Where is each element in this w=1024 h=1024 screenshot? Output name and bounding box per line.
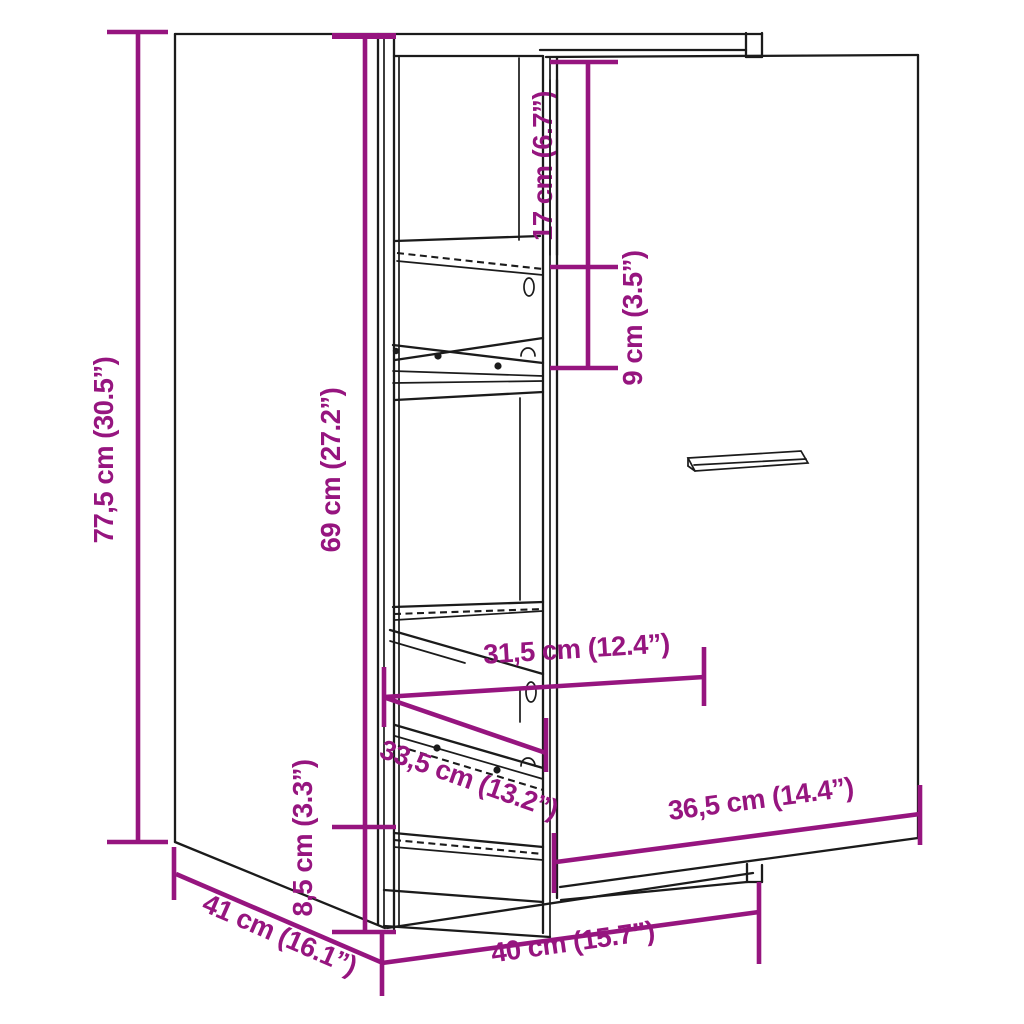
- dim-second-compartment-label: 9 cm (3.5”): [617, 250, 648, 385]
- cabinet-dimension-diagram: 77,5 cm (30.5”) 69 cm (27.2”) 8,5 cm (3.…: [0, 0, 1024, 1024]
- diagram-canvas: 77,5 cm (30.5”) 69 cm (27.2”) 8,5 cm (3.…: [0, 0, 1024, 1024]
- dim-overall-height-label: 77,5 cm (30.5”): [88, 357, 119, 544]
- dim-plinth-height-label: 8,5 cm (3.3”): [287, 759, 318, 916]
- canvas-background: [0, 0, 1024, 1024]
- dim-top-compartment-label: 17 cm (6.7”): [527, 91, 558, 241]
- dim-interior-height-label: 69 cm (27.2”): [315, 388, 346, 553]
